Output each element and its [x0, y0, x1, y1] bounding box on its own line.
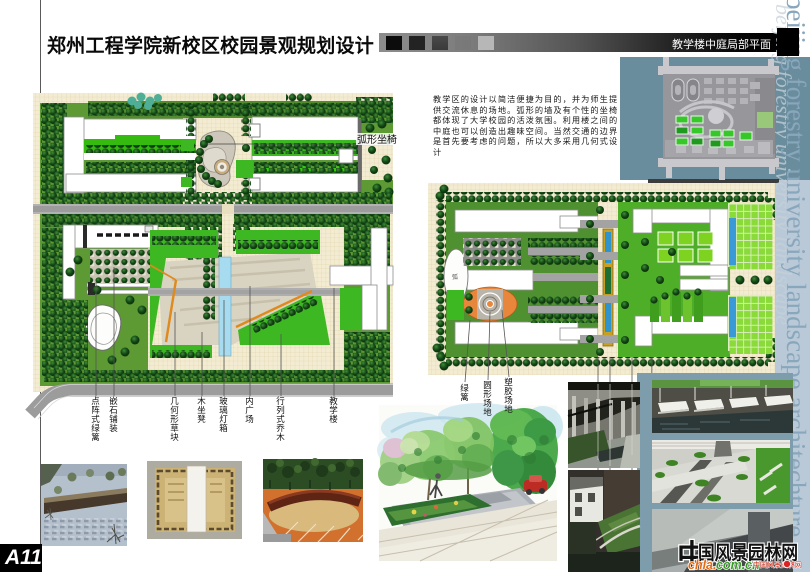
svg-text:弧形坐椅: 弧形坐椅 — [357, 133, 397, 146]
svg-text:弧: 弧 — [452, 273, 458, 281]
svg-text:中国风景园林网: 中国风景园林网 — [753, 560, 802, 569]
svg-text:chla.com.cn: chla.com.cn — [688, 558, 760, 572]
